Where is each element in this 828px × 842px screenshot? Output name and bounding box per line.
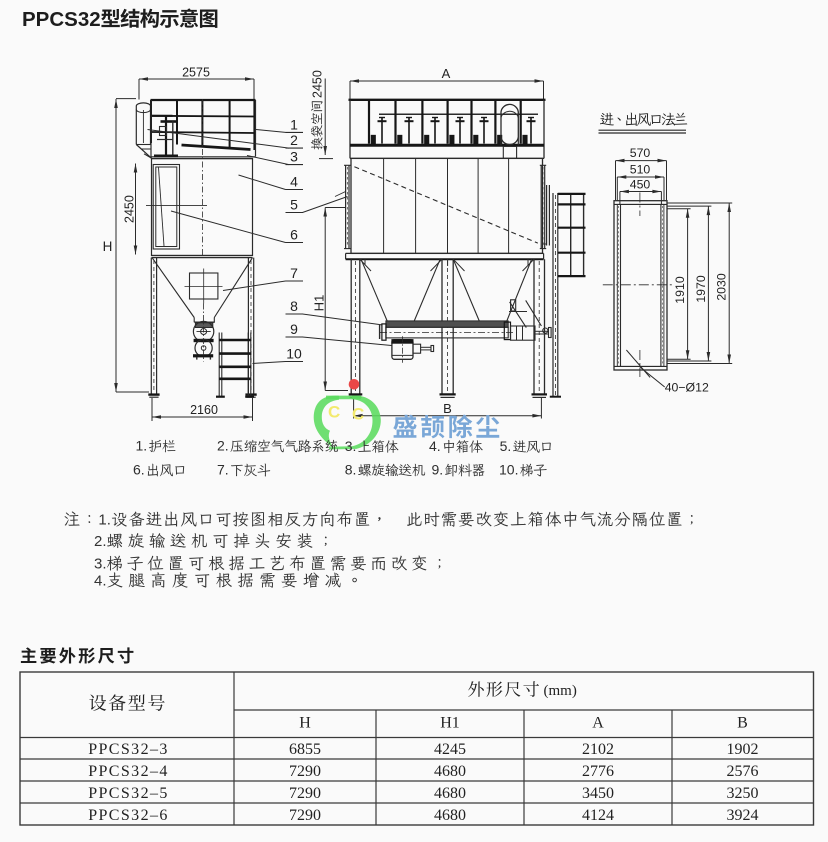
svg-text:6855: 6855: [289, 741, 321, 758]
svg-text:(mm): (mm): [544, 683, 577, 699]
svg-text:3250: 3250: [727, 785, 759, 802]
svg-text:7: 7: [290, 265, 298, 281]
svg-text:2: 2: [290, 132, 298, 148]
svg-text:5: 5: [290, 197, 298, 213]
svg-text:H: H: [299, 715, 311, 732]
svg-text:2450: 2450: [123, 195, 137, 223]
svg-text:9: 9: [290, 321, 298, 337]
svg-text:3.: 3.: [94, 556, 107, 573]
svg-text:7290: 7290: [289, 807, 321, 824]
svg-text:PPCS32–5: PPCS32–5: [88, 785, 169, 802]
svg-text:3.: 3.: [345, 438, 357, 454]
svg-text:C: C: [328, 403, 340, 422]
svg-text:1.: 1.: [98, 512, 111, 529]
svg-text:2575: 2575: [182, 66, 210, 80]
svg-text:B: B: [737, 715, 748, 732]
svg-text:A: A: [442, 66, 451, 81]
svg-text:3924: 3924: [727, 807, 759, 824]
svg-text:4680: 4680: [434, 763, 466, 780]
svg-text:PPCS32–6: PPCS32–6: [88, 807, 169, 824]
svg-text:40−Ø12: 40−Ø12: [665, 381, 709, 395]
svg-text:570: 570: [630, 146, 651, 160]
svg-text:7290: 7290: [289, 785, 321, 802]
svg-text:7290: 7290: [289, 763, 321, 780]
svg-text:6.: 6.: [133, 462, 145, 478]
svg-text:2102: 2102: [582, 741, 614, 758]
svg-text:1970: 1970: [694, 275, 708, 303]
svg-text:PPCS32: PPCS32: [22, 8, 101, 31]
svg-text:9.: 9.: [432, 462, 444, 478]
svg-text:2030: 2030: [715, 273, 729, 301]
svg-text:4680: 4680: [434, 807, 466, 824]
svg-text:A: A: [592, 715, 604, 732]
svg-text:3: 3: [290, 149, 298, 165]
svg-text:4245: 4245: [434, 741, 466, 758]
svg-text:4: 4: [290, 174, 298, 190]
svg-text:4124: 4124: [582, 807, 614, 824]
svg-text:2776: 2776: [582, 763, 614, 780]
svg-text:450: 450: [630, 177, 651, 191]
svg-text:2.: 2.: [217, 438, 229, 454]
svg-text:6: 6: [290, 227, 298, 243]
svg-text:3450: 3450: [582, 785, 614, 802]
svg-text:8.: 8.: [345, 462, 357, 478]
svg-text:10: 10: [286, 346, 302, 362]
svg-text:2576: 2576: [727, 763, 759, 780]
svg-text:PPCS32–4: PPCS32–4: [88, 763, 169, 780]
svg-text:PPCS32–3: PPCS32–3: [88, 741, 169, 758]
svg-text:H1: H1: [440, 715, 460, 732]
svg-text:1.: 1.: [136, 438, 148, 454]
svg-text:5.: 5.: [500, 438, 512, 454]
svg-text:4.: 4.: [429, 438, 441, 454]
svg-text:2.: 2.: [94, 533, 107, 550]
svg-text:2160: 2160: [190, 403, 218, 417]
svg-text:H1: H1: [311, 295, 326, 312]
svg-text:1910: 1910: [673, 276, 687, 304]
svg-text:1902: 1902: [727, 741, 759, 758]
svg-text:2450: 2450: [310, 70, 324, 98]
svg-text:510: 510: [630, 163, 651, 177]
svg-text:8: 8: [290, 298, 298, 314]
svg-text:10.: 10.: [499, 462, 518, 478]
svg-text:1: 1: [290, 116, 298, 132]
svg-text:7.: 7.: [217, 462, 229, 478]
svg-text:4680: 4680: [434, 785, 466, 802]
svg-text:C: C: [352, 405, 364, 424]
svg-text:4.: 4.: [94, 573, 107, 590]
svg-text:H: H: [103, 239, 113, 254]
svg-text:B: B: [443, 401, 452, 416]
